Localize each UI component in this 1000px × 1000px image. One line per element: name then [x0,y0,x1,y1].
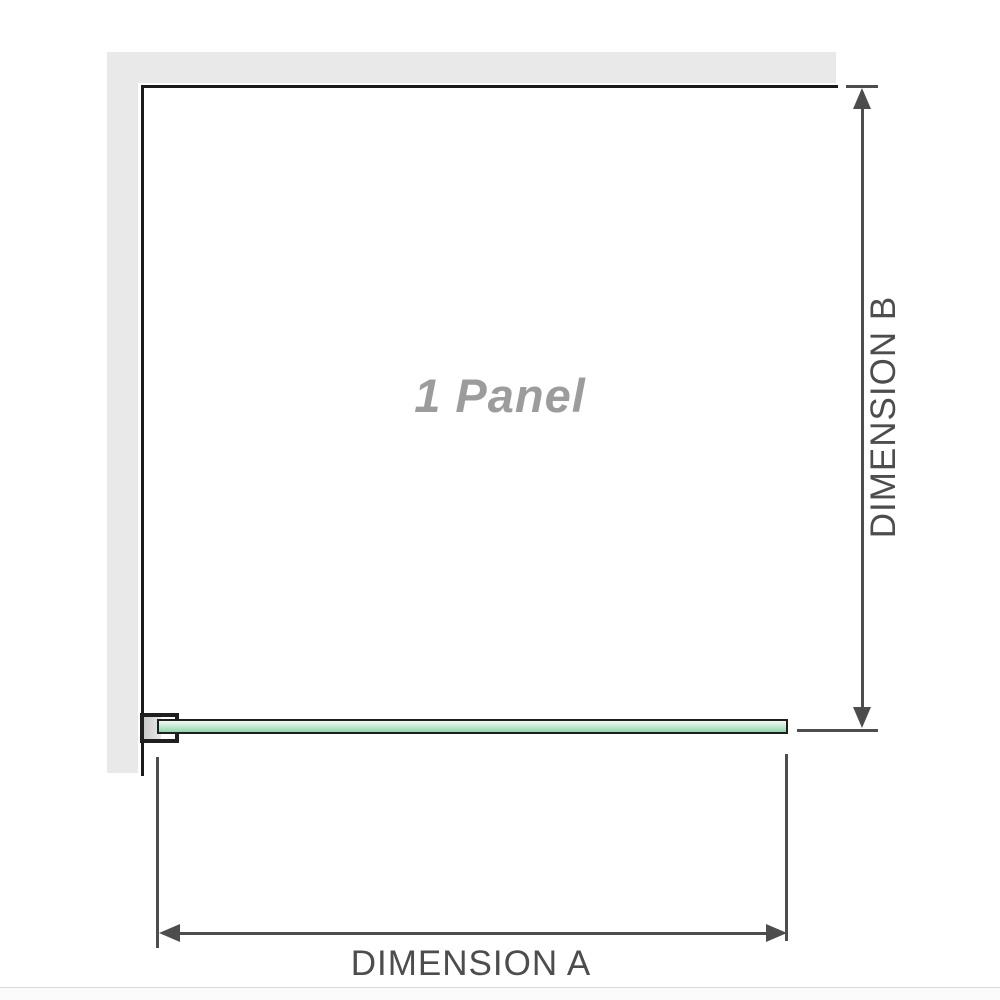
enclosure-top-line [141,85,838,88]
arrow-right-icon [766,924,787,942]
wall-left-band [107,52,138,773]
dimension-a-line [165,932,782,935]
arrow-left-icon [159,924,180,942]
dimension-b-tick-bottom [797,729,878,732]
panel-count-label: 1 Panel [300,368,700,424]
glass-panel [157,719,788,734]
dimension-b-label: DIMENSION B [866,217,902,617]
dimension-a-extension-right [785,754,788,941]
wall-top-band [107,52,836,83]
arrow-up-icon [853,88,871,109]
dimension-a-extension-left [156,757,159,948]
bottom-strip [0,988,1000,1000]
arrow-down-icon [853,707,871,728]
dimension-a-label: DIMENSION A [271,946,671,982]
enclosure-left-line [141,85,144,776]
